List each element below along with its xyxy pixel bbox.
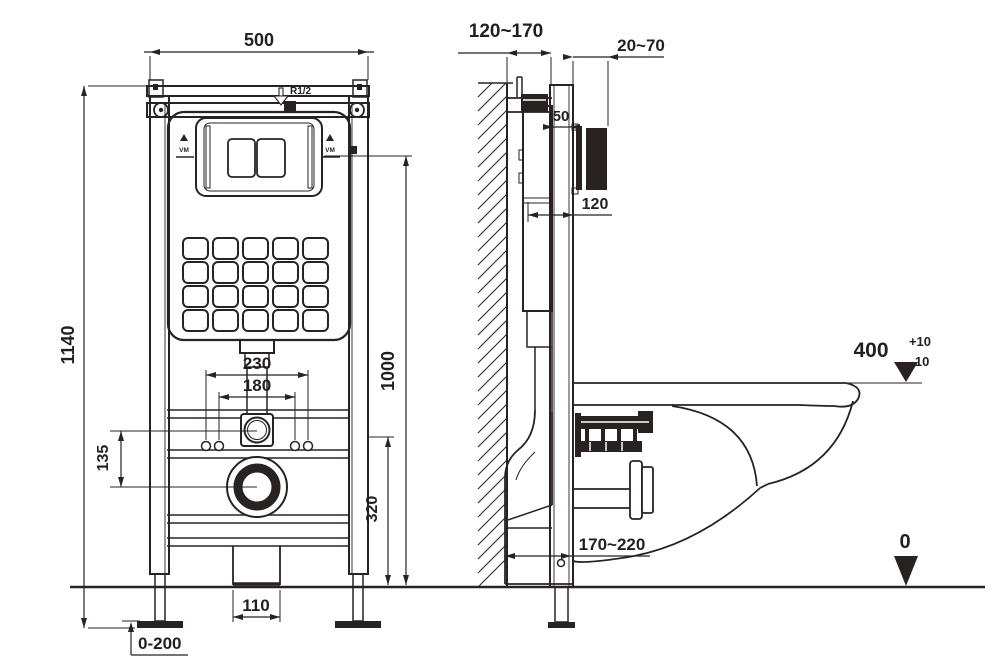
front-view: VM VM xyxy=(58,30,412,655)
dim-rim-height: 400 xyxy=(853,339,888,362)
wall-section xyxy=(478,83,513,587)
dim-rail-depth: 50 xyxy=(553,108,570,125)
level-mark-right: VM xyxy=(322,134,340,157)
dim-fixing-inner: 180 xyxy=(243,376,271,395)
flush-plate-side xyxy=(572,124,607,194)
vm-label-right: VM xyxy=(325,147,335,154)
dim-fixing-outer: 230 xyxy=(243,354,271,373)
water-inlet: R1/2 xyxy=(274,86,312,113)
fixing-hole xyxy=(215,442,224,451)
dim-outlet-height: 320 xyxy=(364,496,381,523)
dim-inlet-drop: 135 xyxy=(95,445,112,472)
flush-button-small xyxy=(228,139,255,177)
bracket-clamp xyxy=(521,94,548,112)
fixing-hole xyxy=(291,442,300,451)
technical-drawing-page: VM VM xyxy=(0,0,1000,666)
level-mark-left: VM xyxy=(176,134,194,157)
mounting-bolts xyxy=(575,411,653,457)
front-dimensions: 500 1140 230 180 135 xyxy=(58,30,412,655)
right-foot-plate xyxy=(335,621,381,628)
dim-floor-outlet-offset: 170~220 xyxy=(579,535,646,554)
dim-frame-width: 500 xyxy=(244,30,274,50)
fixing-hole xyxy=(202,442,211,451)
rim-height-datum: 400 +10 -10 xyxy=(853,334,931,382)
dim-rim-tol-plus: +10 xyxy=(909,334,931,349)
dim-frame-height: 1140 xyxy=(58,325,78,364)
dim-floor-outlet-width: 110 xyxy=(242,596,269,615)
left-foot-plate xyxy=(137,621,183,628)
dim-floor-datum: 0 xyxy=(899,531,910,553)
side-foot-plate xyxy=(548,622,575,628)
side-view: 120~170 20~70 50 120 170~220 xyxy=(458,21,931,628)
protection-grid xyxy=(183,238,328,331)
dim-tank-depth: 120 xyxy=(582,196,609,213)
flush-button-large xyxy=(257,139,285,177)
installation-drawing: VM VM xyxy=(0,0,1000,666)
outlet-connector xyxy=(573,461,653,519)
floor-datum: 0 xyxy=(894,531,918,586)
wall-hatching xyxy=(478,83,507,587)
dim-leg-adjustment: 0-200 xyxy=(138,634,181,653)
datum-triangle-icon xyxy=(894,556,918,586)
inlet-thread-label: R1/2 xyxy=(290,86,312,97)
datum-triangle-icon xyxy=(894,362,918,382)
fixing-hole xyxy=(304,442,313,451)
cistern-side xyxy=(505,106,573,584)
dim-wall-to-front: 120~170 xyxy=(469,21,544,42)
dim-actuator-height: 1000 xyxy=(378,351,398,391)
vm-label-left: VM xyxy=(179,147,189,154)
flush-plate xyxy=(196,118,322,196)
dim-finished-wall: 20~70 xyxy=(617,36,665,55)
